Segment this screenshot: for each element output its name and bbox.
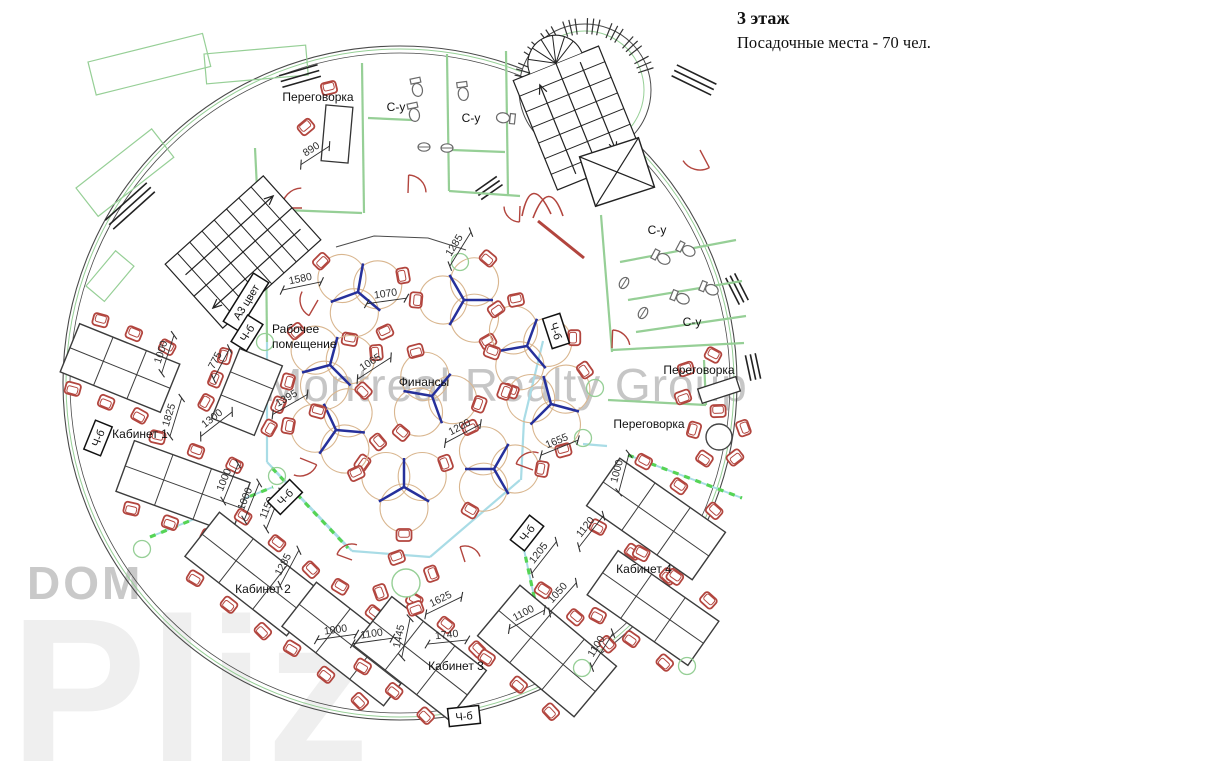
chair [695,449,714,467]
chair [281,417,295,434]
chair [674,389,692,405]
chair [655,653,674,672]
chair [207,370,224,388]
chair [253,622,272,641]
chair [588,607,607,625]
chair [372,583,388,601]
chair [705,501,724,520]
bar-group [672,65,717,95]
sink-fixture [636,306,649,321]
dimension-text: 1050 [545,580,570,606]
chair [541,702,560,721]
room-label: С-у [387,100,406,114]
meeting-chair [704,346,723,364]
door-arc [683,150,709,170]
bar-group [475,176,502,199]
chair [566,608,585,627]
chair [735,419,751,437]
chair [186,569,205,587]
title-block: 3 этаж Посадочные места - 70 чел. [737,8,931,53]
entry-canopy [522,193,563,218]
chair [392,423,411,442]
chair [396,267,410,284]
door-arc [612,330,630,348]
print-tag: Ч-б [543,313,570,348]
chair [576,360,594,379]
room-label-workroom: Рабочее [272,322,319,336]
sink-fixture [418,143,430,151]
chair [312,252,331,271]
door-arc [300,292,318,316]
chair [316,665,335,684]
chair [437,454,453,472]
loose-chair [483,344,501,360]
chair [507,293,524,308]
chair [197,393,215,412]
chair [219,595,238,614]
chair [267,534,286,553]
chair [301,560,320,579]
chair [388,549,406,565]
red-wall-line [538,221,584,258]
dimension-text: 890 [301,140,322,160]
room-label: Кабинет 2 [235,582,291,596]
chair [634,453,653,471]
bar-group [745,353,760,381]
door-arc [504,206,520,222]
loose-chair [507,293,524,308]
chair [483,344,501,360]
chair [283,639,302,657]
chair [704,346,723,364]
chair [187,443,205,459]
print-tag: Ч-б [84,420,112,456]
toilet-fixture [457,81,469,101]
toilet-fixture [651,249,672,267]
chair [622,630,641,648]
room-label: Финансы [399,375,449,389]
door-arc [460,546,480,562]
chair [123,501,140,516]
chair [369,432,388,451]
chair [97,394,115,411]
workstation-cluster [267,245,613,541]
chair [409,292,422,308]
chair [331,578,350,596]
bar-group [726,273,749,304]
chair [535,461,549,478]
chair [423,565,439,583]
chair [478,249,497,268]
chair [161,515,179,531]
meeting-table [321,105,353,163]
toilet-fixture [699,281,720,297]
room-label: Переговорка [282,90,354,104]
dimension: 1625 [417,584,466,619]
room-label: С-у [648,223,667,237]
chair [407,343,425,358]
room-label: С-у [683,315,702,329]
sink-fixture [617,276,630,291]
room-label-workroom: помещение [272,337,337,351]
print-tag-text: Ч-б [455,710,473,724]
chair [710,405,725,418]
chair [92,312,110,327]
door-arc [408,175,426,193]
dimension-text: 1740 [434,628,459,642]
round-table [686,405,751,468]
room-label: Кабинет 3 [428,659,484,673]
meeting-chair [296,118,315,137]
chair [699,591,718,610]
floor-plan-svg: 8901285158010701065139577510001825130012… [0,0,1205,768]
chair [471,395,487,413]
chair [260,418,278,437]
chair [487,300,506,318]
floor-subtitle: Посадочные места - 70 чел. [737,33,931,53]
chair [296,118,315,137]
chair [669,477,688,495]
dimension: 1285 [437,223,476,271]
dimension-text: 1070 [373,286,398,301]
chair [686,421,702,439]
chair [416,706,435,725]
dimension-text: 1580 [288,271,313,288]
door-arc [294,458,317,476]
workstation-y [353,453,454,542]
chair [125,325,143,342]
chair [130,407,149,425]
chair [725,448,744,467]
desk-banks [53,307,735,733]
chair [397,529,412,541]
chair [64,381,82,396]
chair [509,675,528,694]
chair [341,332,358,346]
chair [350,692,369,711]
chair [376,323,395,340]
toilet-fixture [496,112,515,124]
door-arc [516,452,538,470]
workstation-y [493,358,613,470]
room-label: Переговорка [663,363,735,377]
loose-chair [369,432,388,451]
dimension: 1070 [362,285,410,308]
sink-fixture [441,144,453,152]
chair [309,404,327,419]
room-label: Кабинет 4 [616,562,672,576]
meeting-chair [674,389,692,405]
page: Montreal Realty Group DOM Pliz 890128515… [0,0,1205,768]
round-table [372,549,439,616]
loose-chair [376,323,395,340]
toilet-fixture [410,77,424,97]
room-label: Кабинет 1 [112,427,168,441]
toilet-fixture [676,241,697,259]
print-tag: Ч-б [448,705,481,726]
room-label: Переговорка [613,417,685,431]
room-label: С-у [462,111,481,125]
floor-title: 3 этаж [737,8,931,29]
